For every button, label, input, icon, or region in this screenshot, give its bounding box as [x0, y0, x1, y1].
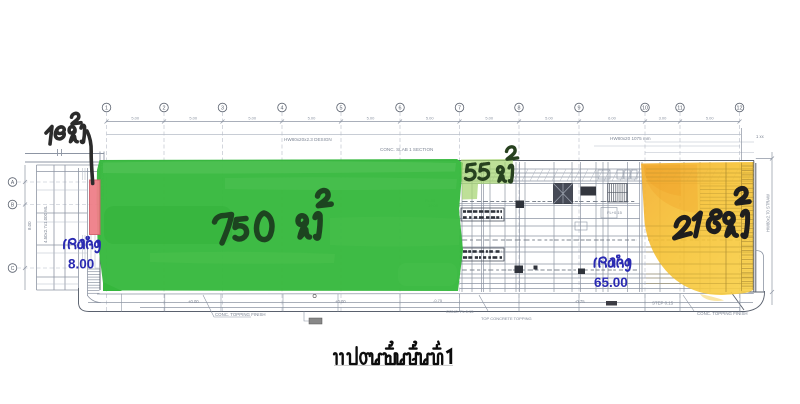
svg-text:4: 4 — [281, 106, 284, 112]
svg-text:+0.00: +0.00 — [188, 299, 199, 304]
svg-text:5.00: 5.00 — [426, 116, 435, 121]
svg-text:4.50x2.7x1.000 ML: 4.50x2.7x1.000 ML — [43, 205, 48, 243]
svg-text:9: 9 — [578, 106, 581, 112]
svg-text:6.00: 6.00 — [608, 116, 617, 121]
svg-text:C: C — [11, 266, 15, 272]
svg-text:HW80x20 1075 mm: HW80x20 1075 mm — [610, 136, 651, 141]
svg-text:5.00: 5.00 — [545, 116, 554, 121]
svg-text:CONC. TOPPING FINISH: CONC. TOPPING FINISH — [697, 311, 748, 316]
svg-text:CONC. TOPPING FINISH: CONC. TOPPING FINISH — [215, 312, 266, 317]
svg-text:8.00: 8.00 — [68, 257, 94, 272]
svg-text:5.00: 5.00 — [189, 116, 198, 121]
svg-text:7: 7 — [458, 106, 461, 112]
svg-text:+0.00: +0.00 — [335, 299, 346, 304]
svg-text:2: 2 — [163, 106, 166, 112]
svg-text:CONC. FL 0.15: CONC. FL 0.15 — [446, 309, 474, 314]
svg-text:CONC. SLAB 1 SECTION: CONC. SLAB 1 SECTION — [380, 147, 433, 152]
svg-text:STEP 0.15: STEP 0.15 — [652, 301, 674, 306]
svg-text:1: 1 — [105, 106, 108, 112]
svg-text:10: 10 — [642, 106, 648, 112]
svg-text:-0.75: -0.75 — [433, 298, 443, 303]
svg-text:FL+0.15: FL+0.15 — [607, 210, 623, 215]
svg-text:5: 5 — [340, 106, 343, 112]
svg-text:5.00: 5.00 — [308, 116, 317, 121]
svg-text:12: 12 — [737, 106, 743, 112]
svg-text:TOP CONCRETE TOPPING: TOP CONCRETE TOPPING — [481, 316, 532, 321]
svg-text:6: 6 — [399, 106, 402, 112]
svg-text:8.00: 8.00 — [27, 221, 32, 230]
svg-text:5.00: 5.00 — [131, 116, 140, 121]
svg-text:HW80x2.70 STRAW: HW80x2.70 STRAW — [766, 194, 771, 232]
svg-text:11: 11 — [677, 106, 683, 112]
svg-text:HW80x20x2.3 DESIGN: HW80x20x2.3 DESIGN — [284, 137, 332, 142]
svg-text:5.00: 5.00 — [248, 116, 257, 121]
svg-text:-0.75: -0.75 — [575, 299, 585, 304]
svg-text:5.00: 5.00 — [706, 116, 715, 121]
svg-text:3: 3 — [221, 106, 224, 112]
svg-text:5.00: 5.00 — [367, 116, 376, 121]
svg-text:1 xx: 1 xx — [756, 134, 765, 139]
svg-text:3.00: 3.00 — [659, 116, 668, 121]
svg-text:5.00: 5.00 — [485, 116, 494, 121]
svg-text:8: 8 — [518, 106, 521, 112]
svg-text:65.00: 65.00 — [594, 275, 628, 290]
